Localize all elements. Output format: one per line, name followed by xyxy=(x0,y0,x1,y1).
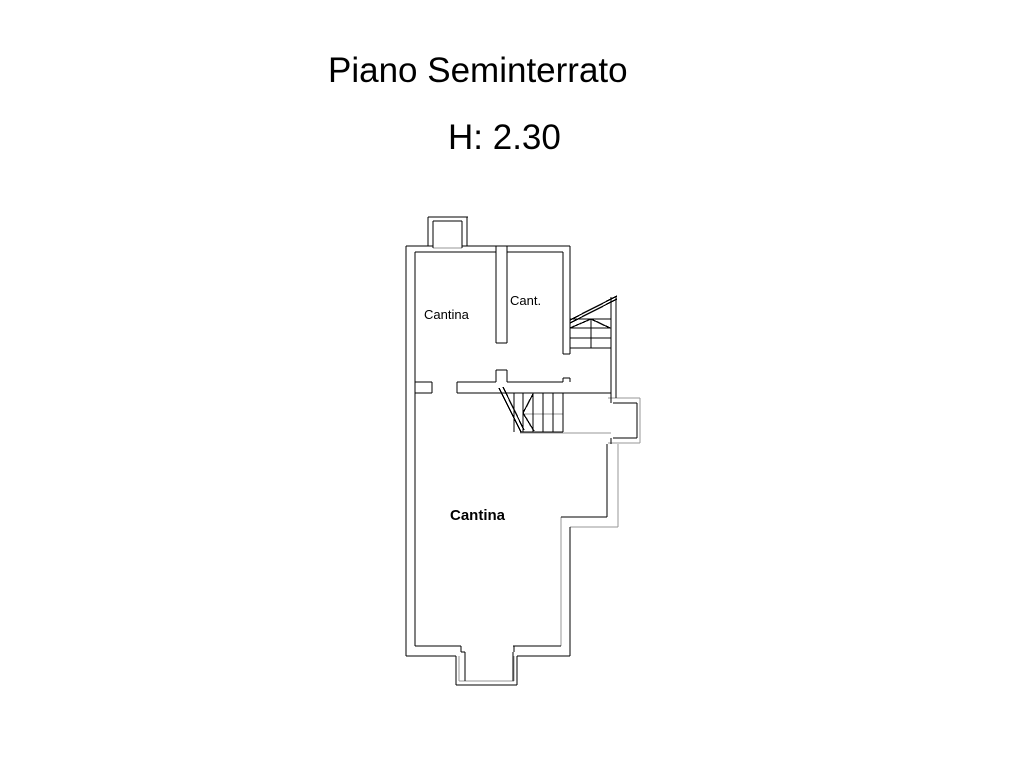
room-label-cant: Cant. xyxy=(510,294,541,307)
page: Piano Seminterrato H: 2.30 Cantina Cant.… xyxy=(0,0,1024,768)
floorplan-drawing xyxy=(0,0,1024,768)
room-label-cantina-lower: Cantina xyxy=(450,508,505,523)
room-label-cantina-upper: Cantina xyxy=(424,308,469,321)
